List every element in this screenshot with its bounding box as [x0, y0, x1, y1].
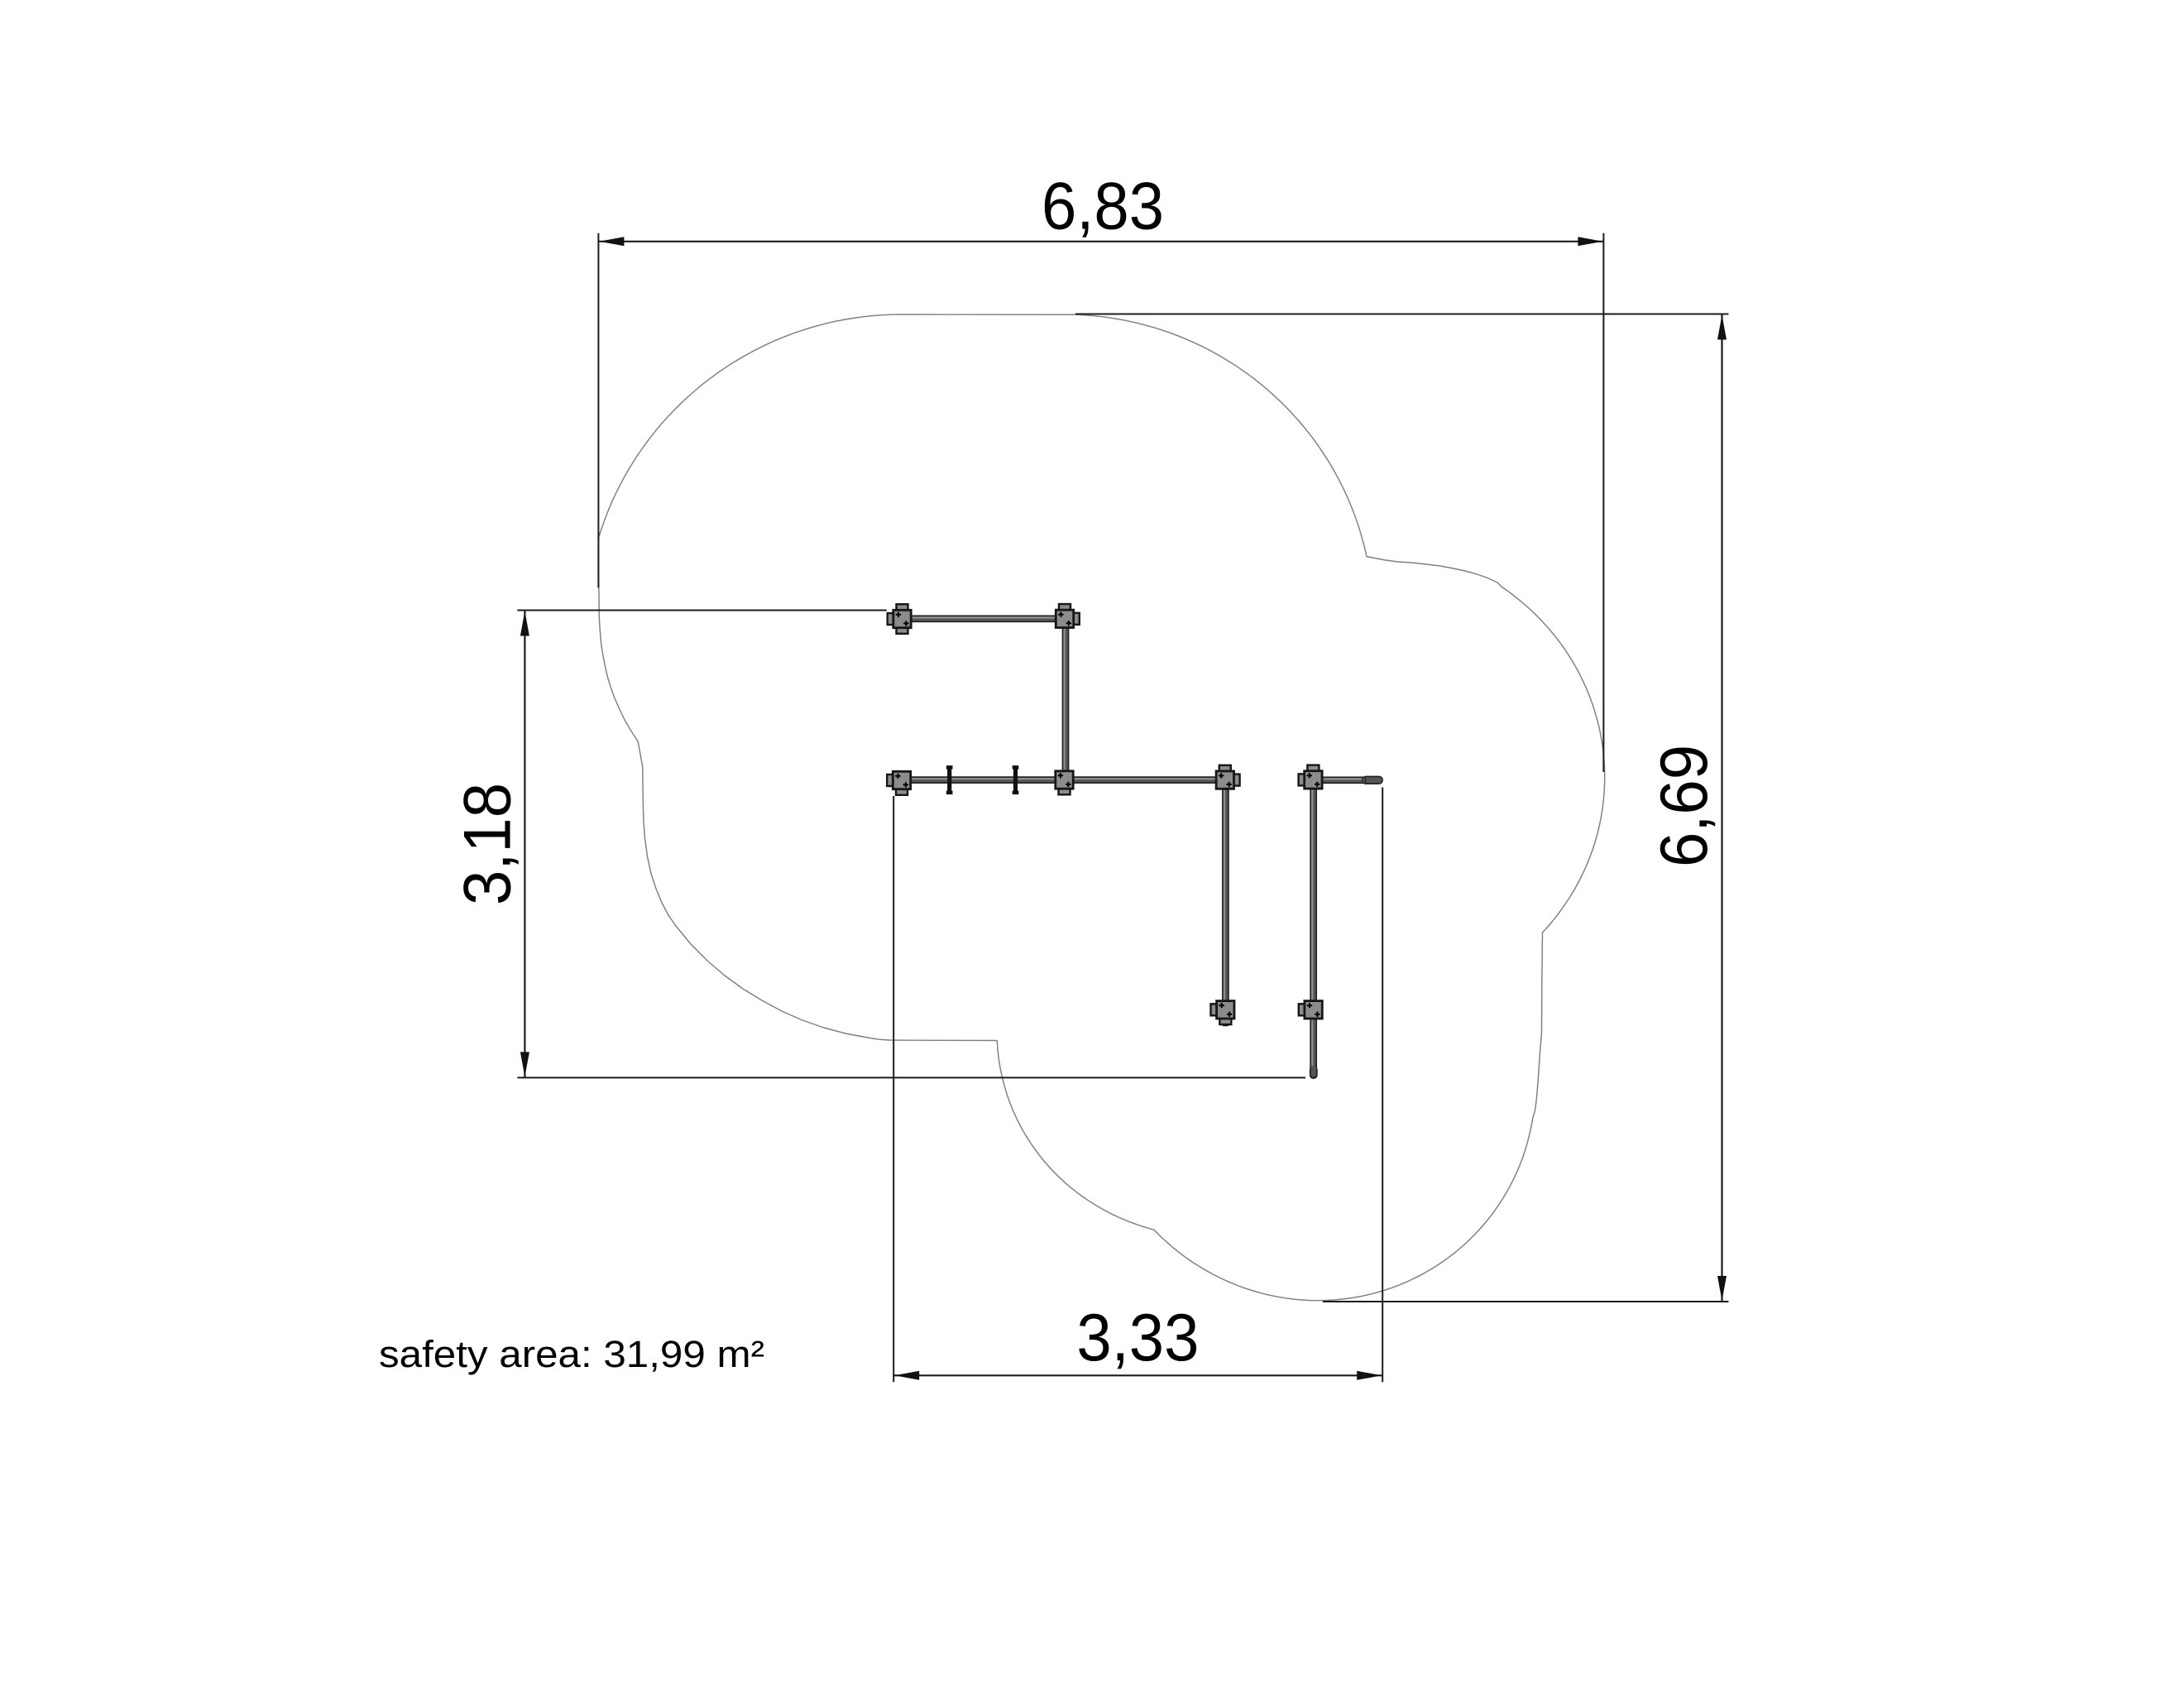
svg-text:3,18: 3,18 — [451, 783, 525, 905]
svg-text:6,69: 6,69 — [1647, 745, 1722, 867]
svg-text:safety area: 31,99 m²: safety area: 31,99 m² — [379, 1333, 764, 1375]
svg-text:6,83: 6,83 — [1042, 170, 1164, 244]
svg-text:3,33: 3,33 — [1076, 1301, 1199, 1375]
